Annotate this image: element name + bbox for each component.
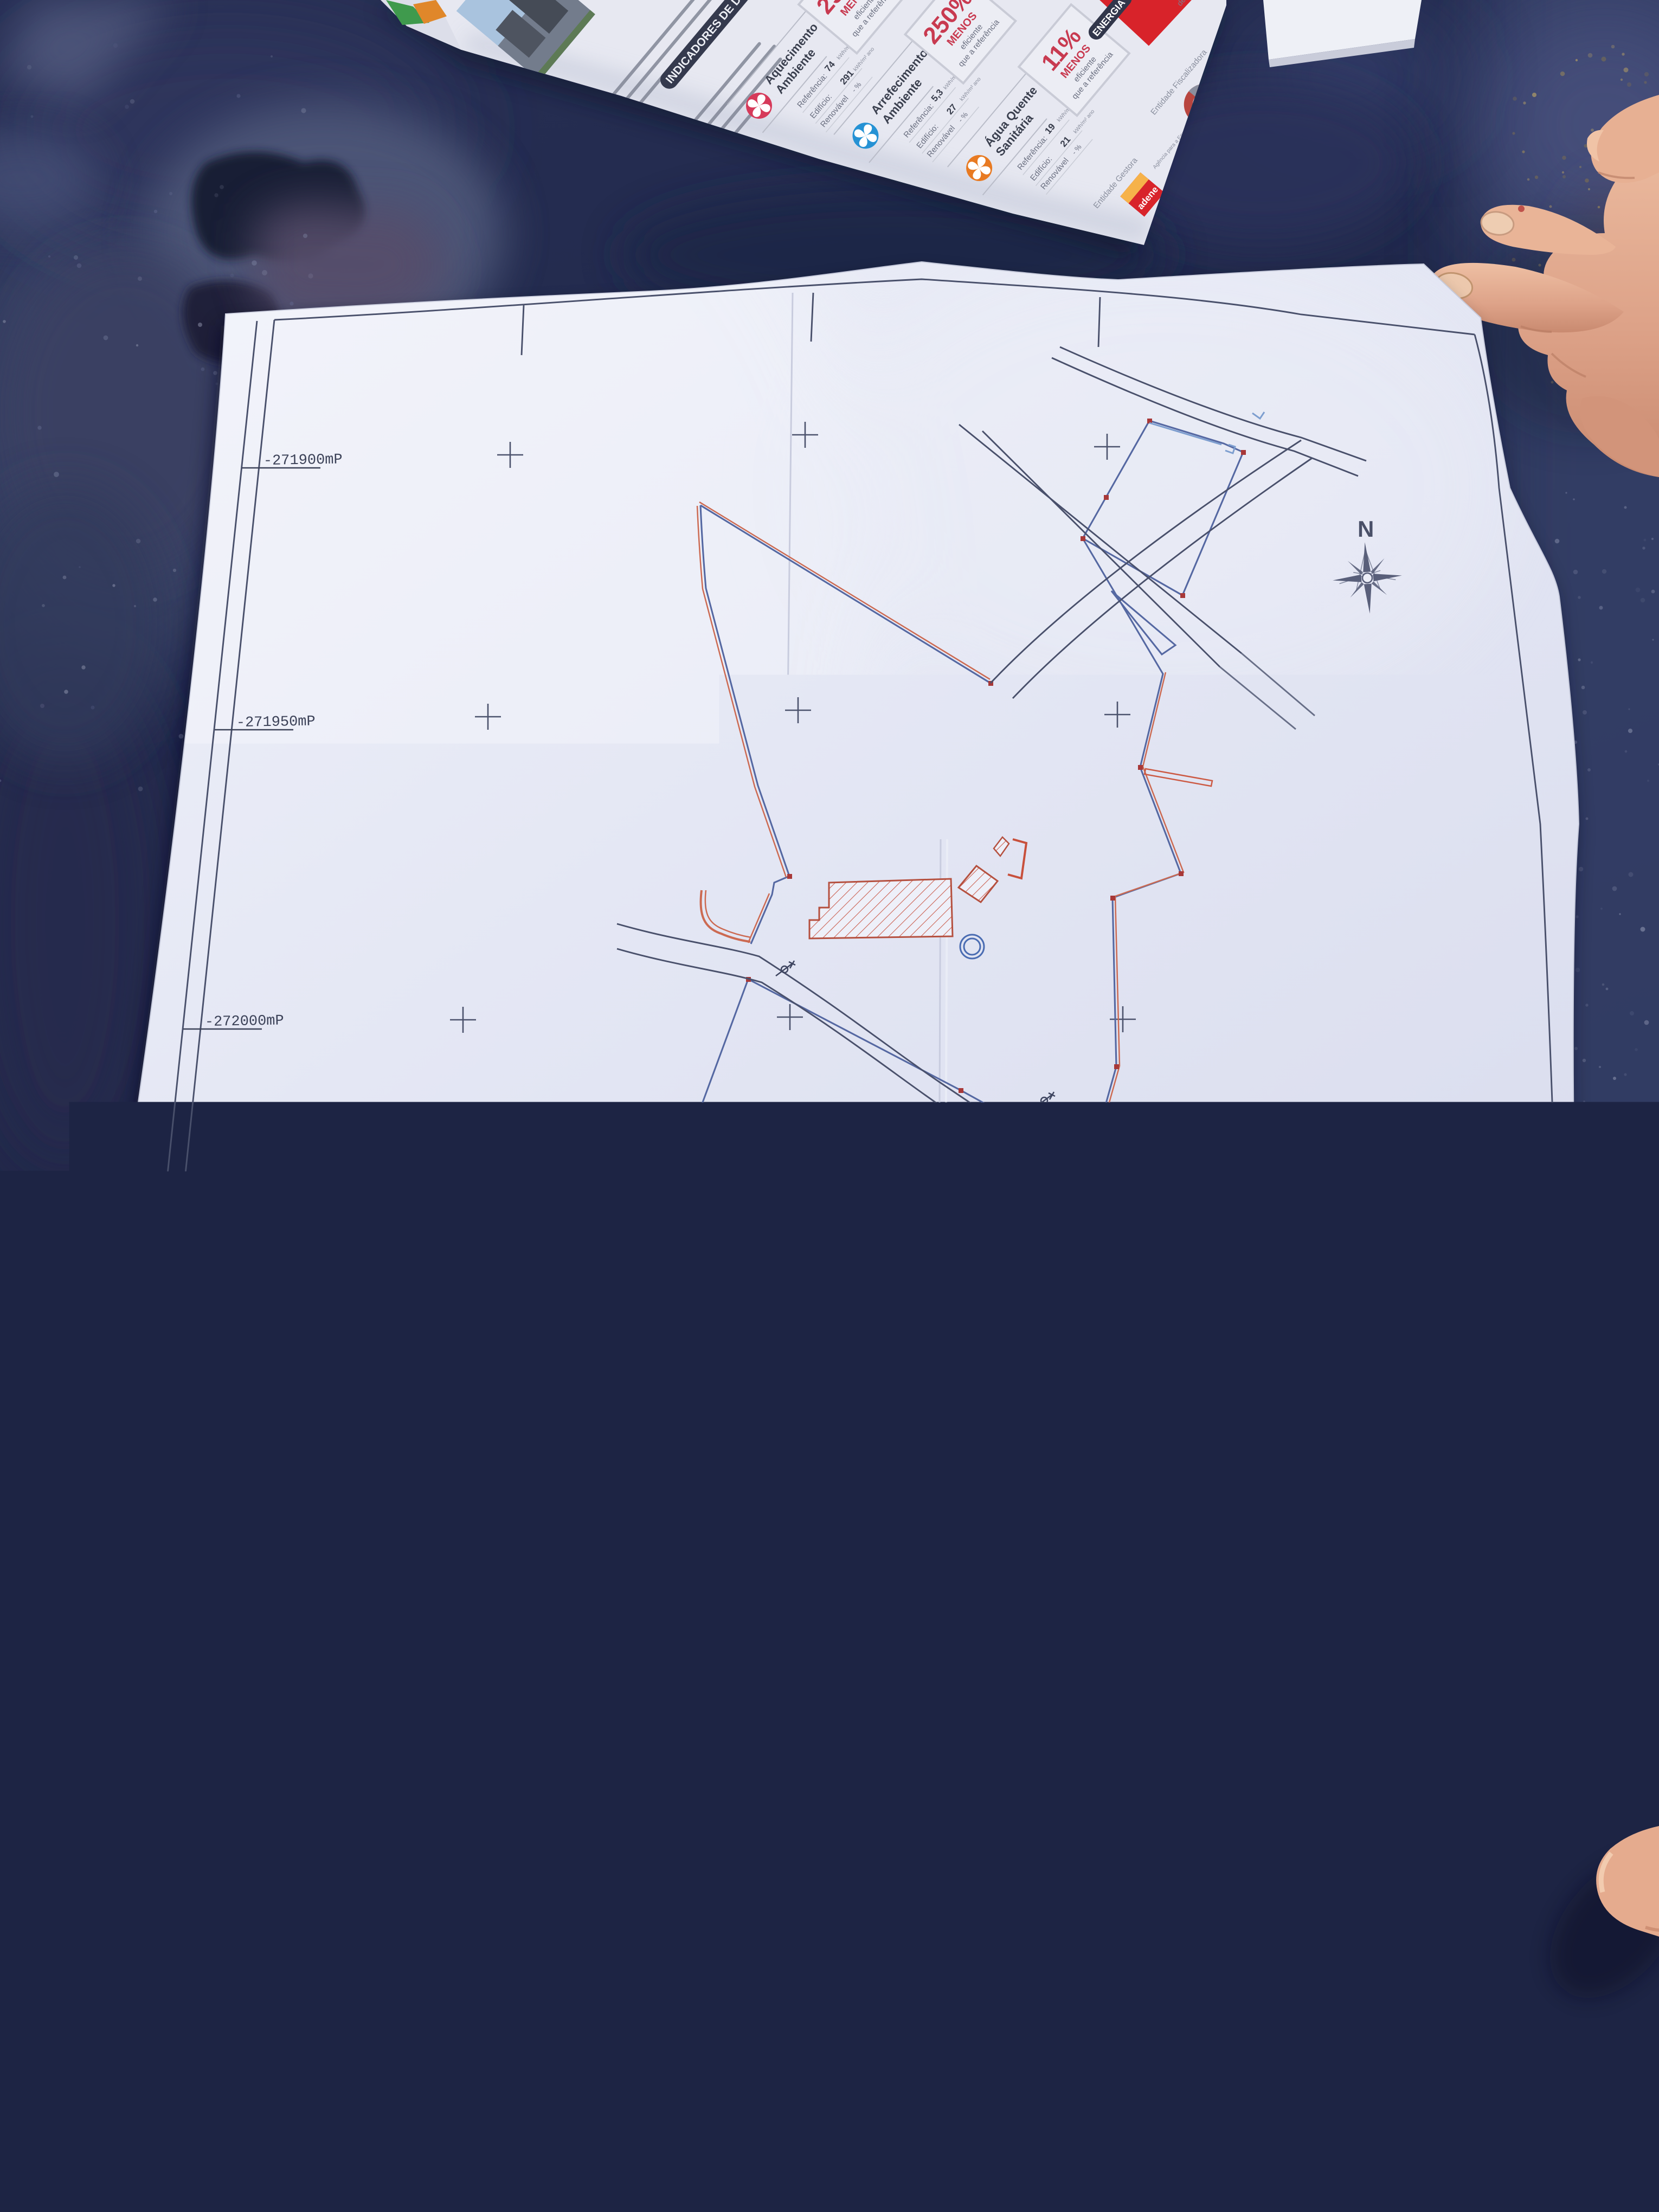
svg-text:PT TM 06: PT TM 06	[1501, 1797, 1555, 1812]
svg-text:Data: Data	[1309, 1767, 1338, 1783]
svg-text:ETRS 89: ETRS 89	[1504, 1813, 1551, 1829]
svg-text:Local: Local	[1312, 1741, 1344, 1757]
svg-text:Cliente: Cliente	[1310, 1711, 1349, 1727]
svg-text:27/06/2019: 27/06/2019	[1314, 1797, 1377, 1814]
svg-text:Georef: Georef	[1399, 1545, 1480, 1575]
svg-text:172: 172	[1506, 1430, 1525, 1443]
svg-text:Desc.: Desc.	[1313, 1683, 1345, 1699]
svg-text:9462: 9462	[1502, 1465, 1526, 1477]
svg-text:31: 31	[1508, 1448, 1520, 1460]
svg-text:Telm : 962918474: Telm : 962918474	[1335, 1638, 1433, 1656]
svg-text:Área anexos: Área anexos	[1349, 1444, 1411, 1457]
svg-text:N: N	[1358, 516, 1374, 542]
svg-text:1/500: 1/500	[1427, 1804, 1458, 1819]
svg-text:-272050mP: -272050mP	[170, 1343, 249, 1361]
svg-text:12300mM: 12300mM	[388, 1783, 404, 1844]
svg-text:Área total do Prédio: Área total do Prédio	[1344, 1461, 1440, 1476]
svg-text:-272100mP: -272100mP	[133, 1696, 213, 1714]
svg-text:Sist. Coord.: Sist. Coord.	[1489, 1777, 1551, 1793]
svg-text:-271950mP: -271950mP	[236, 713, 316, 731]
svg-text:Artigo nº 2653: Artigo nº 2653	[1366, 1407, 1459, 1425]
svg-text:Escala: Escala	[1407, 1772, 1445, 1787]
svg-text:Lev. Topográfico: Lev. Topográfico	[1362, 1687, 1454, 1704]
svg-text:-271900mP: -271900mP	[263, 452, 343, 470]
svg-text:12400mM: 12400mM	[1126, 1803, 1142, 1864]
svg-text:Corcitos - Loulé: Corcitos - Loulé	[1362, 1746, 1452, 1764]
svg-text:8100-705 Loulé: 8100-705 Loulé	[1334, 1621, 1422, 1638]
svg-text:12350mM: 12350mM	[755, 1789, 771, 1850]
svg-text:-272000mP: -272000mP	[205, 1013, 284, 1031]
svg-text:Área coberta: Área coberta	[1349, 1426, 1412, 1440]
